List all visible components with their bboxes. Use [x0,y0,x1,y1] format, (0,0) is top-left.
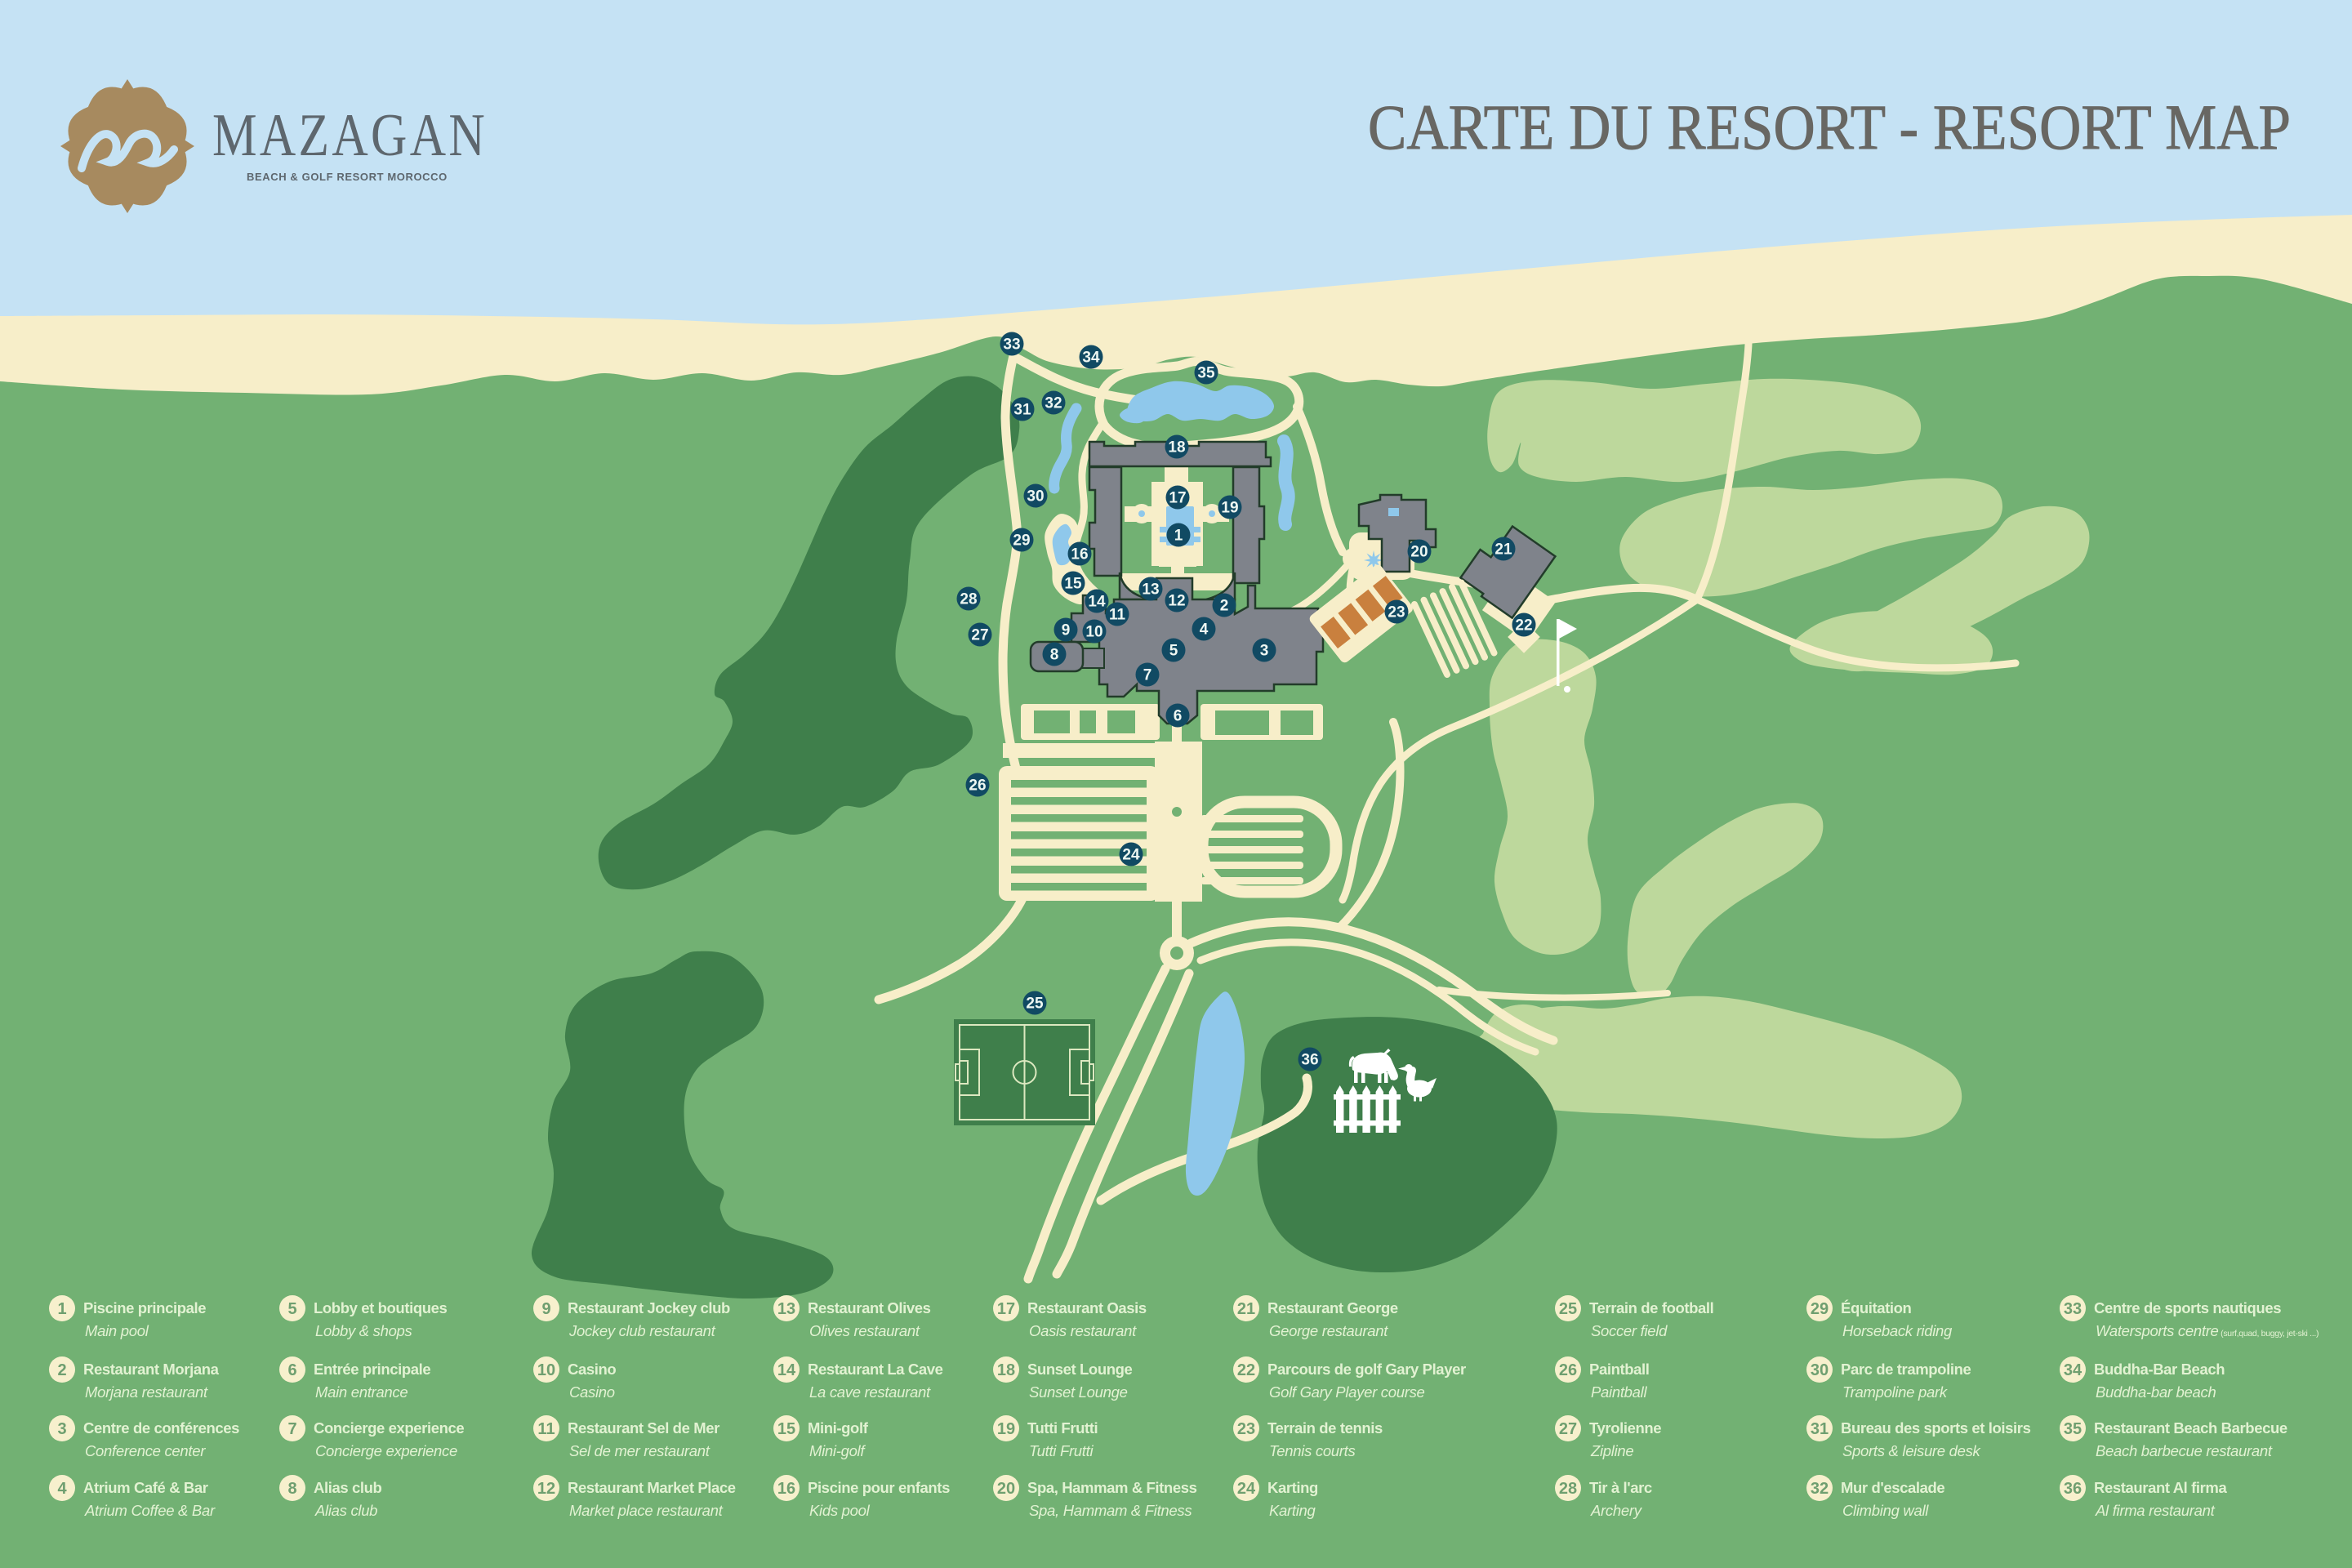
svg-text:Sunset Lounge: Sunset Lounge [1029,1383,1128,1401]
svg-text:15: 15 [777,1420,795,1438]
svg-text:Concierge experience: Concierge experience [314,1419,464,1437]
svg-text:16: 16 [1071,546,1088,563]
svg-text:17: 17 [1169,490,1186,507]
svg-text:Spa, Hammam & Fitness: Spa, Hammam & Fitness [1029,1502,1192,1519]
svg-text:Équitation: Équitation [1841,1299,1912,1316]
svg-text:21: 21 [1237,1300,1255,1318]
svg-text:17: 17 [997,1300,1015,1318]
svg-text:Concierge experience: Concierge experience [315,1442,457,1459]
svg-text:16: 16 [777,1480,795,1498]
svg-text:Terrain de tennis: Terrain de tennis [1267,1419,1383,1437]
svg-text:Restaurant Market Place: Restaurant Market Place [568,1479,736,1496]
svg-text:23: 23 [1237,1420,1255,1438]
svg-text:Oasis restaurant: Oasis restaurant [1029,1322,1137,1339]
svg-text:25: 25 [1559,1300,1577,1318]
svg-text:Mur d'escalade: Mur d'escalade [1841,1479,1944,1496]
svg-text:8: 8 [287,1480,296,1498]
svg-text:13: 13 [1142,581,1159,599]
svg-text:Karting: Karting [1269,1502,1316,1519]
svg-text:Buddha-Bar Beach: Buddha-Bar Beach [2094,1361,2225,1378]
svg-text:20: 20 [997,1480,1015,1498]
svg-text:21: 21 [1494,541,1512,559]
svg-text:Olives restaurant: Olives restaurant [809,1322,920,1339]
svg-text:32: 32 [1811,1480,1829,1498]
svg-text:28: 28 [1559,1480,1577,1498]
svg-text:29: 29 [1811,1300,1829,1318]
svg-text:11: 11 [537,1420,555,1438]
svg-text:Tutti Frutti: Tutti Frutti [1027,1419,1098,1437]
svg-text:Mini-golf: Mini-golf [808,1419,869,1437]
svg-text:Atrium Coffee & Bar: Atrium Coffee & Bar [84,1502,216,1519]
svg-text:35: 35 [1197,365,1215,382]
svg-text:Tutti Frutti: Tutti Frutti [1029,1442,1094,1459]
svg-text:3: 3 [57,1420,66,1438]
svg-text:Restaurant Sel de Mer: Restaurant Sel de Mer [568,1419,719,1437]
svg-text:Paintball: Paintball [1591,1383,1647,1401]
svg-text:1: 1 [1174,528,1183,545]
svg-text:24: 24 [1122,847,1140,864]
svg-text:15: 15 [1064,576,1082,593]
svg-text:Trampoline park: Trampoline park [1842,1383,1949,1401]
svg-text:Restaurant Beach Barbecue: Restaurant Beach Barbecue [2094,1419,2287,1437]
svg-text:36: 36 [2064,1480,2082,1498]
svg-text:Restaurant Morjana: Restaurant Morjana [83,1361,220,1378]
svg-text:Soccer field: Soccer field [1591,1322,1668,1339]
svg-text:Terrain de football: Terrain de football [1589,1299,1713,1316]
svg-text:George restaurant: George restaurant [1269,1322,1388,1339]
svg-text:Sel de mer restaurant: Sel de mer restaurant [569,1442,710,1459]
svg-text:12: 12 [1168,593,1185,610]
svg-text:Atrium Café & Bar: Atrium Café & Bar [83,1479,208,1496]
svg-text:4: 4 [57,1480,67,1498]
svg-text:33: 33 [1003,336,1020,354]
svg-text:10: 10 [1085,624,1102,641]
svg-text:Sports & leisure desk: Sports & leisure desk [1842,1442,1982,1459]
svg-text:Tennis courts: Tennis courts [1269,1442,1355,1459]
svg-text:24: 24 [1237,1480,1256,1498]
svg-text:Parcours de golf Gary Player: Parcours de golf Gary Player [1267,1361,1466,1378]
svg-text:27: 27 [971,627,988,644]
svg-text:30: 30 [1811,1361,1829,1379]
svg-text:7: 7 [1143,667,1152,684]
svg-text:5: 5 [1169,643,1178,660]
svg-text:22: 22 [1515,617,1532,635]
svg-text:Buddha-bar beach: Buddha-bar beach [2096,1383,2216,1401]
svg-text:31: 31 [1013,402,1031,419]
svg-text:Alias club: Alias club [314,1502,377,1519]
svg-text:Lobby et boutiques: Lobby et boutiques [314,1299,448,1316]
svg-text:Morjana restaurant: Morjana restaurant [85,1383,208,1401]
svg-text:Horseback riding: Horseback riding [1842,1322,1953,1339]
svg-text:Piscine pour enfants: Piscine pour enfants [808,1479,950,1496]
svg-text:Golf Gary Player course: Golf Gary Player course [1269,1383,1425,1401]
svg-text:CARTE DU RESORT - RESORT MAP: CARTE DU RESORT - RESORT MAP [1368,91,2291,163]
svg-text:Bureau des sports et loisirs: Bureau des sports et loisirs [1841,1419,2031,1437]
svg-text:6: 6 [287,1361,296,1379]
svg-text:Market place restaurant: Market place restaurant [569,1502,724,1519]
svg-text:26: 26 [1559,1361,1577,1379]
svg-text:Entrée principale: Entrée principale [314,1361,430,1378]
svg-text:Centre de conférences: Centre de conférences [83,1419,239,1437]
svg-text:Restaurant La Cave: Restaurant La Cave [808,1361,943,1378]
svg-text:23: 23 [1388,604,1405,621]
svg-text:Lobby & shops: Lobby & shops [315,1322,412,1339]
svg-text:28: 28 [960,591,977,608]
svg-text:Piscine principale: Piscine principale [83,1299,206,1316]
svg-text:2: 2 [1220,598,1229,615]
svg-text:Restaurant Al firma: Restaurant Al firma [2094,1479,2227,1496]
svg-text:Main entrance: Main entrance [315,1383,408,1401]
svg-text:8: 8 [1050,647,1059,664]
svg-text:27: 27 [1559,1420,1577,1438]
svg-text:MAZAGAN: MAZAGAN [212,102,488,169]
svg-text:36: 36 [1301,1052,1318,1069]
svg-text:14: 14 [1088,594,1106,611]
svg-text:Tir à l'arc: Tir à l'arc [1589,1479,1652,1496]
svg-text:32: 32 [1045,395,1062,412]
svg-text:Sunset Lounge: Sunset Lounge [1027,1361,1133,1378]
svg-text:10: 10 [537,1361,555,1379]
svg-text:Casino: Casino [568,1361,616,1378]
svg-text:26: 26 [969,777,986,795]
svg-text:18: 18 [997,1361,1015,1379]
svg-text:4: 4 [1200,621,1209,639]
svg-text:11: 11 [1109,607,1126,624]
svg-text:22: 22 [1237,1361,1255,1379]
svg-text:34: 34 [2064,1361,2082,1379]
svg-text:33: 33 [2064,1300,2082,1318]
svg-text:Archery: Archery [1590,1502,1643,1519]
svg-text:Alias club: Alias club [314,1479,381,1496]
svg-text:Restaurant Oasis: Restaurant Oasis [1027,1299,1147,1316]
svg-text:34: 34 [1082,350,1100,367]
svg-text:La cave restaurant: La cave restaurant [809,1383,931,1401]
svg-text:Tyrolienne: Tyrolienne [1589,1419,1661,1437]
svg-text:35: 35 [2064,1420,2082,1438]
svg-text:13: 13 [777,1300,795,1318]
svg-text:6: 6 [1174,708,1183,725]
svg-text:Al firma restaurant: Al firma restaurant [2095,1502,2216,1519]
svg-text:Restaurant George: Restaurant George [1267,1299,1398,1316]
svg-text:30: 30 [1027,488,1044,506]
svg-text:Beach barbecue restaurant: Beach barbecue restaurant [2096,1442,2273,1459]
svg-text:3: 3 [1260,643,1269,660]
svg-text:Parc de trampoline: Parc de trampoline [1841,1361,1971,1378]
svg-text:Centre de sports nautiques: Centre de sports nautiques [2094,1299,2281,1316]
svg-text:Spa, Hammam & Fitness: Spa, Hammam & Fitness [1027,1479,1197,1496]
svg-text:BEACH & GOLF RESORT MOROCCO: BEACH & GOLF RESORT MOROCCO [247,171,448,183]
svg-text:Zipline: Zipline [1590,1442,1633,1459]
svg-text:1: 1 [57,1300,66,1318]
svg-text:5: 5 [287,1300,296,1318]
svg-text:12: 12 [537,1480,555,1498]
svg-text:Casino: Casino [569,1383,615,1401]
svg-text:Karting: Karting [1267,1479,1318,1496]
svg-text:31: 31 [1811,1420,1829,1438]
svg-text:Restaurant Jockey club: Restaurant Jockey club [568,1299,730,1316]
svg-text:Mini-golf: Mini-golf [809,1442,866,1459]
svg-text:29: 29 [1013,532,1030,550]
svg-text:19: 19 [1221,500,1238,517]
svg-text:25: 25 [1026,996,1044,1013]
svg-text:Climbing wall: Climbing wall [1842,1502,1929,1519]
svg-text:Paintball: Paintball [1589,1361,1650,1378]
svg-text:2: 2 [57,1361,66,1379]
svg-text:18: 18 [1168,439,1185,457]
svg-text:7: 7 [287,1420,296,1438]
svg-text:Kids pool: Kids pool [809,1502,871,1519]
svg-text:20: 20 [1410,544,1428,561]
svg-text:Restaurant Olives: Restaurant Olives [808,1299,931,1316]
svg-text:14: 14 [777,1361,796,1379]
svg-text:Jockey club restaurant: Jockey club restaurant [568,1322,716,1339]
svg-text:19: 19 [997,1420,1015,1438]
svg-text:Conference center: Conference center [85,1442,206,1459]
svg-text:Main pool: Main pool [85,1322,149,1339]
svg-text:9: 9 [541,1300,550,1318]
svg-text:9: 9 [1062,622,1071,639]
